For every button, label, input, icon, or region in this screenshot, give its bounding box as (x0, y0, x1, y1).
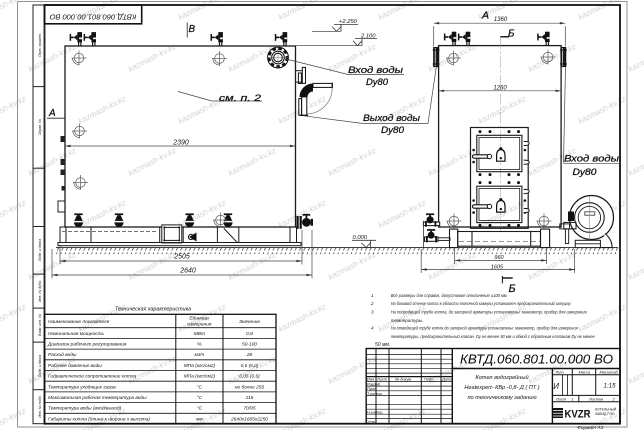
svg-text:Б: Б (509, 283, 516, 295)
svg-text:Лист: Лист (555, 396, 567, 401)
svg-text:см. п. 2: см. п. 2 (219, 92, 262, 103)
svg-text:115: 115 (246, 395, 254, 401)
svg-text:МПа (кгс/см2): МПа (кгс/см2) (184, 363, 216, 369)
svg-text:Перв. примен.: Перв. примен. (38, 33, 42, 57)
svg-text:Подп. и дата: Подп. и дата (38, 355, 42, 378)
svg-text:2: 2 (370, 301, 374, 306)
svg-text:+2.250: +2.250 (339, 19, 358, 25)
svg-text:Т.контр.: Т.контр. (367, 391, 383, 396)
svg-text:2.100: 2.100 (360, 33, 376, 39)
svg-text:1: 1 (371, 293, 374, 298)
svg-text:Б: Б (508, 29, 515, 40)
svg-text:Справ. №: Справ. № (38, 119, 42, 135)
svg-text:МВт: МВт (194, 331, 205, 337)
svg-text:На боковой стенке котла в обла: На боковой стенке котла в области топочн… (391, 300, 571, 306)
svg-text:°С: °С (197, 384, 203, 390)
svg-text:1: 1 (572, 396, 574, 401)
svg-text:1:15: 1:15 (604, 383, 617, 390)
svg-text:Н.контр.: Н.контр. (367, 410, 383, 415)
svg-text:На отводящей трубе котла до за: На отводящей трубе котла до запорной арм… (391, 325, 578, 331)
svg-text:%: % (197, 342, 202, 348)
svg-text:0,6 (6,0): 0,6 (6,0) (241, 363, 259, 369)
svg-text:2390: 2390 (172, 139, 189, 146)
svg-text:Температура уходящих газов: Температура уходящих газов (48, 384, 116, 390)
svg-text:KVZR: KVZR (565, 409, 591, 421)
svg-text:КОТЕЛЬНЫЙ: КОТЕЛЬНЫЙ (595, 408, 617, 412)
svg-text:Диапазон рабочего регулировани: Диапазон рабочего регулирования (47, 342, 127, 348)
svg-text:Подп.: Подп. (424, 377, 434, 382)
svg-text:50 мм.: 50 мм. (375, 342, 390, 348)
svg-text:Котел водогрейный: Котел водогрейный (475, 374, 528, 381)
svg-text:Heatexpert- КВр -0,8- Д ( ПТ ): Heatexpert- КВр -0,8- Д ( ПТ ) (464, 385, 539, 391)
svg-text:Рабочее давление воды: Рабочее давление воды (48, 363, 102, 369)
svg-text:ЗАВОД РЭП: ЗАВОД РЭП (595, 412, 615, 416)
svg-text:Номинальная мощность: Номинальная мощность (48, 331, 105, 337)
svg-text:В: В (189, 24, 196, 35)
svg-text:м3/ч: м3/ч (195, 352, 205, 358)
svg-text:Масса: Масса (579, 370, 591, 375)
svg-text:Dу80: Dу80 (381, 125, 405, 135)
svg-text:КВТД.060.801.00.000 ВО: КВТД.060.801.00.000 ВО (50, 13, 137, 22)
svg-text:Подп. и дата: Подп. и дата (38, 239, 42, 262)
svg-text:0.000: 0.000 (353, 235, 368, 241)
svg-text:3: 3 (371, 310, 374, 315)
svg-text:Dу80: Dу80 (366, 77, 389, 87)
svg-text:Инв. № подл.: Инв. № подл. (38, 395, 42, 417)
svg-text:2640: 2640 (179, 267, 196, 274)
svg-text:Инв. № дубл.: Инв. № дубл. (38, 280, 42, 302)
svg-text:Лит.: Лит. (555, 370, 565, 375)
svg-text:№ докум.: № докум. (395, 377, 412, 382)
svg-text:А: А (48, 108, 56, 119)
svg-text:28: 28 (246, 352, 253, 358)
svg-text:1605: 1605 (491, 264, 504, 270)
svg-text:не более 250: не более 250 (235, 384, 265, 390)
svg-text:Максимальная рабочая температу: Максимальная рабочая температура воды (48, 395, 147, 401)
svg-text:Выход воды: Выход воды (363, 113, 420, 124)
svg-text:°С: °С (197, 406, 203, 412)
svg-text:Все размеры для справок, допус: Все размеры для справок, допустимое откл… (391, 293, 508, 298)
svg-text:А: А (481, 10, 489, 22)
svg-text:Наименование показателя: Наименование показателя (48, 319, 110, 325)
svg-text:И: И (553, 382, 559, 391)
svg-text:Единицы: Единицы (189, 316, 210, 322)
svg-text:Расход воды: Расход воды (48, 352, 77, 358)
svg-text:960: 960 (494, 255, 504, 261)
svg-text:Утв.: Утв. (367, 419, 376, 424)
svg-text:Взам. инв. №: Взам. инв. № (38, 314, 42, 336)
svg-text:1360: 1360 (494, 17, 508, 23)
svg-text:измерения: измерения (187, 323, 211, 328)
svg-text:Значение: Значение (239, 319, 260, 325)
svg-text:Температура воды (вход/выход): Температура воды (вход/выход) (48, 406, 122, 412)
svg-text:Масштаб: Масштаб (600, 370, 619, 375)
svg-text:70/95: 70/95 (243, 406, 255, 412)
svg-text:температуры.: температуры. (391, 318, 424, 323)
svg-text:0,06 (0,6): 0,06 (0,6) (239, 374, 260, 380)
svg-text:Листов: Листов (588, 396, 603, 401)
svg-text:Гидравлическое сопротивление к: Гидравлическое сопротивление котла (48, 374, 136, 380)
svg-text:2505: 2505 (173, 254, 190, 261)
svg-text:Техническая характеристика: Техническая характеристика (115, 307, 191, 313)
svg-text:мм: мм (196, 417, 203, 422)
svg-text:На подводящей трубе котла, д: На подводящей трубе котла, до запорной а… (391, 309, 587, 315)
svg-text:2640х1605х2250: 2640х1605х2250 (230, 416, 268, 422)
svg-text:Габариты котла (длина х ширина: Габариты котла (длина х ширина х высота) (48, 416, 150, 422)
svg-text:1260: 1260 (493, 85, 507, 91)
svg-text:МПа (кгс/см2): МПа (кгс/см2) (184, 374, 216, 380)
svg-text:по техническому заданию: по техническому заданию (467, 395, 537, 401)
svg-text:50-100: 50-100 (242, 342, 257, 348)
svg-text:4: 4 (371, 326, 374, 331)
svg-text:Дата: Дата (441, 377, 453, 382)
svg-text:КВТД.060.801.00.000 ВО: КВТД.060.801.00.000 ВО (460, 352, 613, 367)
svg-text:Вход воды: Вход воды (348, 65, 403, 76)
svg-text:0,8: 0,8 (246, 331, 253, 337)
svg-text:Формат А3: Формат А3 (577, 425, 604, 430)
svg-text:температуры, предохранительный: температуры, предохранительный клапан. D… (391, 333, 595, 339)
svg-text:°С: °С (197, 395, 203, 401)
svg-text:Вход воды: Вход воды (564, 154, 619, 165)
svg-text:Dу80: Dу80 (573, 167, 598, 177)
